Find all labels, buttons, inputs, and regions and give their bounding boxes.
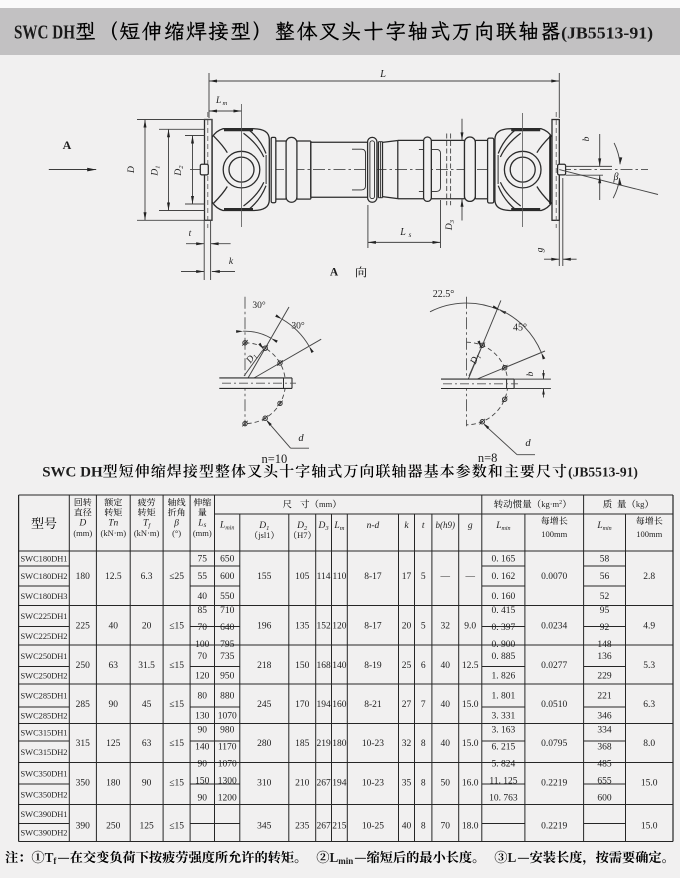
svg-text:≤15: ≤15 [169,739,184,749]
svg-text:SWC350DH2: SWC350DH2 [21,791,68,800]
svg-text:(°): (°) [172,528,181,538]
svg-text:L: L [215,96,221,106]
svg-text:219: 219 [316,739,331,749]
svg-text:≤15: ≤15 [169,779,184,789]
svg-text:194: 194 [332,779,347,789]
svg-text:L: L [508,850,517,865]
svg-text:mm: mm [319,499,333,509]
svg-text:130: 130 [195,712,210,722]
svg-text:15.0: 15.0 [462,700,479,710]
svg-text:185: 185 [295,739,310,749]
svg-text:710: 710 [220,606,235,616]
svg-text:≤15: ≤15 [169,700,184,710]
svg-text:(mm): (mm) [193,528,212,538]
svg-text:—: — [464,572,475,582]
svg-text:27: 27 [402,700,412,710]
svg-text:16.0: 16.0 [462,779,479,789]
svg-text:8: 8 [421,779,426,789]
svg-text:55: 55 [198,572,208,582]
svg-text:jsl1: jsl1 [257,530,270,540]
svg-text:10. 763: 10. 763 [489,794,518,804]
svg-text:485: 485 [597,760,612,770]
svg-text:655: 655 [597,776,612,786]
svg-text:63: 63 [109,661,119,671]
svg-text:32: 32 [402,739,412,749]
svg-text:8-19: 8-19 [364,661,382,671]
svg-text:0. 162: 0. 162 [492,572,516,582]
svg-text:SWC350DH1: SWC350DH1 [21,770,68,779]
svg-text:80: 80 [198,692,208,702]
svg-text:90: 90 [198,794,208,804]
svg-text:g: g [536,247,546,252]
svg-text:218: 218 [257,661,272,671]
svg-text:40: 40 [441,739,451,749]
svg-text:148: 148 [597,640,612,650]
svg-text:0.0234: 0.0234 [541,622,567,632]
svg-text:136: 136 [597,652,612,662]
svg-text:114: 114 [317,572,331,582]
svg-text:70: 70 [198,652,208,662]
svg-text:SWC225DH2: SWC225DH2 [21,632,68,641]
svg-text:20: 20 [402,622,412,632]
svg-text:1200: 1200 [218,794,237,804]
svg-text:75: 75 [198,555,208,565]
svg-text:8.0: 8.0 [643,739,655,749]
svg-text:110: 110 [332,572,346,582]
svg-text:≤25: ≤25 [169,572,184,582]
svg-text:L: L [379,69,386,80]
svg-text:0.0277: 0.0277 [541,661,567,671]
svg-text:30°: 30° [291,321,305,332]
svg-text:980: 980 [220,726,235,736]
svg-text:40: 40 [441,700,451,710]
svg-text:245: 245 [257,700,272,710]
svg-text:SWC390DH1: SWC390DH1 [21,810,68,819]
svg-text:95: 95 [600,606,610,616]
svg-text:160: 160 [332,700,347,710]
svg-text:40: 40 [198,592,208,602]
svg-text:10-23: 10-23 [362,779,384,789]
svg-text:140: 140 [195,743,210,753]
svg-text:735: 735 [220,652,235,662]
svg-text:8: 8 [421,822,426,832]
svg-text:140: 140 [332,661,347,671]
svg-text:52: 52 [600,592,610,602]
svg-text:32: 32 [441,622,451,632]
svg-text:210: 210 [295,779,310,789]
svg-text:3. 163: 3. 163 [492,726,516,736]
svg-text:31.5: 31.5 [138,661,155,671]
svg-text:12.5: 12.5 [462,661,479,671]
svg-text:SWC225DH1: SWC225DH1 [21,612,68,621]
svg-text:A: A [63,138,72,152]
svg-text:10-25: 10-25 [362,822,384,832]
svg-text:795: 795 [220,640,235,650]
svg-text:50: 50 [441,779,451,789]
svg-text:90: 90 [198,760,208,770]
svg-text:g: g [468,521,473,531]
svg-text:SWC180DH3: SWC180DH3 [21,592,68,601]
svg-text:250: 250 [76,661,91,671]
svg-text:120: 120 [332,622,347,632]
svg-text:1. 801: 1. 801 [492,692,516,702]
svg-text:β: β [173,519,179,529]
svg-text:0. 415: 0. 415 [492,606,516,616]
svg-text:n=10: n=10 [261,452,287,466]
svg-text:10-23: 10-23 [362,739,384,749]
svg-text:0. 900: 0. 900 [492,640,516,650]
svg-text:150: 150 [295,661,310,671]
svg-text:18.0: 18.0 [462,822,479,832]
svg-text:350: 350 [76,779,91,789]
svg-text:SWC285DH2: SWC285DH2 [21,712,68,721]
svg-text:SWC250DH1: SWC250DH1 [21,652,68,661]
svg-text:90: 90 [198,726,208,736]
svg-text:100mm: 100mm [541,529,567,539]
svg-text:229: 229 [597,672,612,682]
svg-text:346: 346 [597,712,612,722]
svg-text:SWC315DH1: SWC315DH1 [21,729,68,738]
svg-text:1. 826: 1. 826 [492,672,516,682]
svg-text:40: 40 [109,622,119,632]
svg-text:250: 250 [106,822,121,832]
svg-text:3. 331: 3. 331 [492,712,516,722]
svg-text:H7: H7 [297,530,307,540]
svg-text:11. 125: 11. 125 [489,776,517,786]
svg-text:9.0: 9.0 [464,622,476,632]
svg-text:s: s [409,231,412,239]
svg-text:1300: 1300 [218,776,237,786]
svg-text:310: 310 [257,779,272,789]
svg-text:—: — [440,572,451,582]
svg-text:194: 194 [316,700,331,710]
svg-text:22.5°: 22.5° [433,289,455,300]
svg-text:6: 6 [421,661,426,671]
svg-text:880: 880 [220,692,235,702]
svg-text:368: 368 [597,743,612,753]
svg-text:1070: 1070 [218,760,237,770]
svg-text:0. 165: 0. 165 [492,555,516,565]
svg-text:267: 267 [316,779,331,789]
svg-text:58: 58 [600,555,610,565]
svg-text:SWC180DH2: SWC180DH2 [21,572,68,581]
svg-text:L: L [399,227,406,238]
svg-text:20: 20 [142,622,152,632]
svg-text:8: 8 [421,739,426,749]
svg-text:100: 100 [195,640,210,650]
svg-text:180: 180 [332,739,347,749]
svg-text:0.0510: 0.0510 [541,700,567,710]
svg-text:135: 135 [295,622,310,632]
svg-text:600: 600 [220,572,235,582]
svg-text:25: 25 [402,661,412,671]
svg-text:≤15: ≤15 [169,622,184,632]
svg-text:30°: 30° [252,300,266,311]
svg-text:390: 390 [76,822,91,832]
svg-text:0.0795: 0.0795 [541,739,567,749]
svg-text:15.0: 15.0 [641,779,658,789]
svg-text:180: 180 [106,779,121,789]
svg-text:90: 90 [109,700,119,710]
svg-text:125: 125 [139,822,154,832]
svg-text:950: 950 [220,672,235,682]
svg-text:45°: 45° [513,323,527,334]
svg-text:b: b [526,371,536,376]
svg-text:5: 5 [421,572,426,582]
svg-text:SWC250DH2: SWC250DH2 [21,672,68,681]
svg-text:6.3: 6.3 [141,572,153,582]
svg-text:150: 150 [195,776,210,786]
svg-text:5. 824: 5. 824 [492,760,516,770]
svg-text:15.0: 15.0 [641,822,658,832]
svg-text:5.3: 5.3 [643,661,655,671]
svg-text:285: 285 [76,700,91,710]
svg-text:b(h9): b(h9) [436,520,456,530]
svg-text:SWC315DH2: SWC315DH2 [21,748,68,757]
svg-text:6. 215: 6. 215 [492,743,516,753]
svg-text:0.0070: 0.0070 [541,572,567,582]
svg-text:D: D [78,519,86,529]
svg-text:35: 35 [402,779,412,789]
svg-text:1170: 1170 [218,743,237,753]
svg-text:t: t [189,229,192,239]
svg-text:(JB5513-91): (JB5513-91) [561,24,653,43]
svg-text:40: 40 [402,822,412,832]
svg-text:n-d: n-d [367,521,380,531]
svg-text:t: t [422,521,425,531]
svg-text:550: 550 [220,592,235,602]
svg-text:221: 221 [597,692,612,702]
svg-text:90: 90 [142,779,152,789]
svg-text:SWC DH: SWC DH [42,465,103,481]
svg-text:d: d [525,438,531,449]
svg-text:70: 70 [441,822,451,832]
svg-text:Tn: Tn [108,519,118,529]
svg-text:170: 170 [295,700,310,710]
svg-text:92: 92 [600,623,610,633]
svg-text:40: 40 [441,661,451,671]
svg-text:168: 168 [316,661,331,671]
svg-text:7: 7 [421,700,426,710]
svg-text:β: β [613,172,619,183]
svg-text:63: 63 [142,739,152,749]
svg-text:155: 155 [257,572,272,582]
svg-text:180: 180 [76,572,91,582]
svg-text:A: A [330,267,339,279]
svg-text:SWC390DH2: SWC390DH2 [21,829,68,838]
svg-text:2.8: 2.8 [643,572,655,582]
svg-text:70: 70 [198,623,208,633]
svg-text:152: 152 [316,622,331,632]
svg-text:8-17: 8-17 [364,572,382,582]
svg-text:125: 125 [106,739,121,749]
svg-text:267: 267 [316,822,331,832]
svg-text:315: 315 [76,739,91,749]
svg-text:SWC180DH1: SWC180DH1 [21,555,68,564]
svg-text:(JB5513-91): (JB5513-91) [568,465,638,480]
svg-text:L: L [330,850,339,865]
svg-text:345: 345 [257,822,272,832]
svg-text:(kN·m): (kN·m) [134,528,160,538]
svg-text:5: 5 [421,622,426,632]
svg-text:SWC285DH1: SWC285DH1 [21,692,68,701]
svg-text:kg: kg [636,499,645,509]
svg-text:d: d [298,433,304,444]
svg-text:1070: 1070 [218,712,237,722]
svg-text:≤15: ≤15 [169,822,184,832]
svg-text:105: 105 [295,572,310,582]
svg-text:0. 160: 0. 160 [492,592,516,602]
svg-text:0.2219: 0.2219 [541,779,567,789]
svg-text:0.2219: 0.2219 [541,822,567,832]
svg-text:650: 650 [220,555,235,565]
svg-text:196: 196 [257,622,272,632]
svg-text:4.9: 4.9 [643,622,655,632]
svg-text:45: 45 [142,700,152,710]
svg-text:0. 885: 0. 885 [492,652,516,662]
svg-text:kg·m2: kg·m2 [541,499,562,509]
svg-text:8-17: 8-17 [364,622,382,632]
svg-text:15.0: 15.0 [462,739,479,749]
svg-text:min: min [338,856,353,866]
svg-text:8-21: 8-21 [364,700,382,710]
svg-text:17: 17 [402,572,412,582]
svg-text:235: 235 [295,822,310,832]
svg-text:0. 397: 0. 397 [492,623,516,633]
svg-text:120: 120 [195,672,210,682]
svg-text:100mm: 100mm [636,529,662,539]
svg-text:D: D [127,166,137,174]
svg-text:b: b [582,136,592,141]
svg-text:280: 280 [257,739,272,749]
svg-text:12.5: 12.5 [105,572,122,582]
svg-text:(mm): (mm) [73,528,92,538]
svg-text:6.3: 6.3 [643,700,655,710]
svg-text:SWC DH: SWC DH [14,22,75,44]
svg-text:225: 225 [76,622,91,632]
svg-text:(kN·m): (kN·m) [101,528,127,538]
svg-text:334: 334 [597,726,612,736]
svg-text:n=8: n=8 [478,451,498,465]
svg-text:56: 56 [600,572,610,582]
svg-text:640: 640 [220,623,235,633]
svg-text:600: 600 [597,794,612,804]
svg-text:215: 215 [332,822,347,832]
svg-text:≤15: ≤15 [169,661,184,671]
svg-text:m: m [223,100,228,107]
svg-text:85: 85 [198,606,208,616]
